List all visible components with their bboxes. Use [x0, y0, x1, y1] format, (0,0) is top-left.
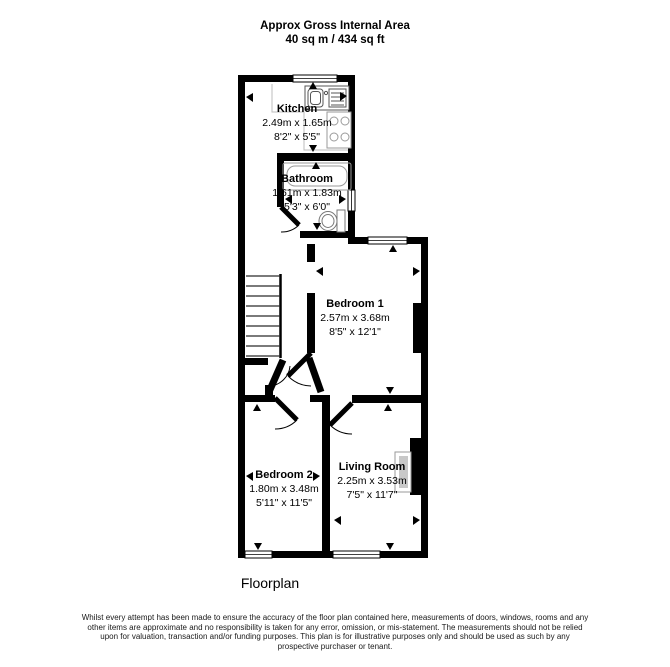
- hallway-angled-walls: [269, 358, 321, 392]
- arrow-right-icon: [313, 472, 320, 481]
- arrow-down-icon: [386, 543, 394, 550]
- window: [368, 237, 407, 244]
- door-arc: [288, 353, 311, 386]
- arrow-down-icon: [309, 145, 317, 152]
- arrow-right-icon: [413, 267, 420, 276]
- door-arc: [275, 398, 297, 429]
- livingroom-imperial: 7'5" x 11'7": [347, 489, 398, 501]
- floorplan-caption: Floorplan: [0, 575, 540, 591]
- bathroom-name: Bathroom: [281, 173, 333, 185]
- arrow-right-icon: [413, 516, 420, 525]
- window: [348, 190, 355, 211]
- bathroom-imperial: 5'3" x 6'0": [284, 201, 330, 213]
- arrow-down-icon: [386, 387, 394, 394]
- arrow-down-icon: [313, 223, 321, 230]
- livingroom-name: Living Room: [339, 461, 406, 473]
- bedroom1-metric: 2.57m x 3.68m: [320, 312, 390, 324]
- bedroom1-chimney-breast: [413, 303, 421, 353]
- bathroom-metric: 1.61m x 1.83m: [272, 187, 342, 199]
- arrow-up-icon: [389, 245, 397, 252]
- door-arc: [330, 403, 352, 434]
- floorplan-drawing: Kitchen 2.49m x 1.65m 8'2" x 5'5" Bathro…: [0, 0, 670, 667]
- window: [245, 551, 272, 558]
- bedroom2-label: Bedroom 2 1.80m x 3.48m 5'11" x 11'5": [249, 469, 319, 509]
- staircase: [246, 274, 281, 358]
- arrow-left-icon: [334, 516, 341, 525]
- arrow-left-icon: [316, 267, 323, 276]
- livingroom-label: Living Room 2.25m x 3.53m 7'5" x 11'7": [337, 461, 407, 501]
- window: [293, 75, 337, 82]
- bedroom2-metric: 1.80m x 3.48m: [249, 483, 319, 495]
- bedroom2-name: Bedroom 2: [255, 469, 312, 481]
- livingroom-metric: 2.25m x 3.53m: [337, 475, 407, 487]
- arrow-up-icon: [253, 404, 261, 411]
- kitchen-imperial: 8'2" x 5'5": [274, 131, 320, 143]
- bedroom1-label: Bedroom 1 2.57m x 3.68m 8'5" x 12'1": [320, 298, 390, 338]
- floorplan-page: Approx Gross Internal Area 40 sq m / 434…: [0, 0, 670, 667]
- livingroom-chimney-breast: [410, 438, 421, 495]
- disclaimer-text: Whilst every attempt has been made to en…: [79, 613, 591, 652]
- arrow-left-icon: [246, 93, 253, 102]
- arrow-up-icon: [384, 404, 392, 411]
- bedroom1-name: Bedroom 1: [326, 298, 383, 310]
- toilet-icon: [319, 210, 345, 232]
- bedroom2-imperial: 5'11" x 11'5": [256, 497, 312, 509]
- bedroom1-imperial: 8'5" x 12'1": [329, 326, 381, 338]
- window: [333, 551, 380, 558]
- fixtures: [272, 84, 411, 492]
- arrow-down-icon: [254, 543, 262, 550]
- kitchen-name: Kitchen: [277, 103, 318, 115]
- arrow-left-icon: [246, 472, 253, 481]
- kitchen-metric: 2.49m x 1.65m: [262, 117, 332, 129]
